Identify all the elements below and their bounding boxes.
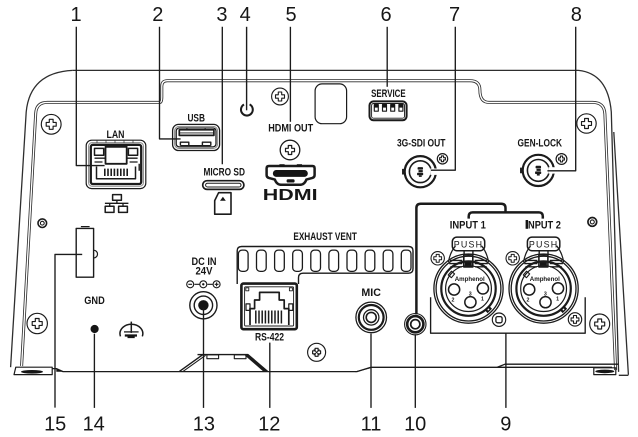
svg-text:14: 14: [83, 413, 105, 435]
svg-text:LAN: LAN: [107, 129, 125, 141]
svg-text:GEN-LOCK: GEN-LOCK: [518, 138, 563, 150]
svg-text:3: 3: [469, 292, 472, 298]
svg-text:INPUT 2: INPUT 2: [525, 220, 561, 232]
svg-text:GND: GND: [84, 295, 105, 307]
svg-text:5: 5: [285, 4, 296, 26]
svg-text:MICRO SD: MICRO SD: [203, 166, 245, 178]
svg-text:15: 15: [44, 413, 66, 435]
svg-text:4: 4: [240, 4, 251, 26]
svg-text:RS-422: RS-422: [255, 332, 284, 344]
svg-text:HDMI: HDMI: [263, 187, 318, 204]
svg-text:24V: 24V: [196, 266, 213, 278]
svg-text:13: 13: [193, 413, 215, 435]
svg-text:MIC: MIC: [361, 287, 381, 299]
svg-text:8: 8: [571, 4, 582, 26]
svg-text:2: 2: [527, 298, 530, 304]
svg-text:6: 6: [380, 4, 391, 26]
svg-text:SERVICE: SERVICE: [371, 88, 406, 100]
svg-text:PUSH: PUSH: [454, 239, 483, 249]
svg-text:HDMI OUT: HDMI OUT: [268, 123, 313, 135]
svg-text:EXHAUST VENT: EXHAUST VENT: [293, 231, 357, 243]
svg-text:1: 1: [70, 4, 81, 26]
svg-text:7: 7: [449, 4, 460, 26]
svg-text:Amphenol: Amphenol: [455, 276, 485, 283]
svg-text:2: 2: [451, 298, 454, 304]
svg-text:3G-SDI OUT: 3G-SDI OUT: [397, 138, 446, 150]
svg-text:12: 12: [258, 413, 280, 435]
svg-text:PUSH: PUSH: [529, 239, 558, 249]
svg-text:1: 1: [481, 297, 484, 303]
svg-text:11: 11: [361, 413, 382, 435]
svg-text:USB: USB: [187, 112, 205, 124]
svg-text:2: 2: [152, 4, 163, 26]
svg-text:9: 9: [500, 413, 511, 435]
svg-text:1: 1: [556, 297, 559, 303]
svg-text:10: 10: [404, 413, 426, 435]
svg-text:Amphenol: Amphenol: [530, 276, 560, 283]
svg-text:3: 3: [544, 292, 547, 298]
svg-text:3: 3: [216, 4, 227, 26]
svg-text:INPUT 1: INPUT 1: [450, 220, 486, 232]
